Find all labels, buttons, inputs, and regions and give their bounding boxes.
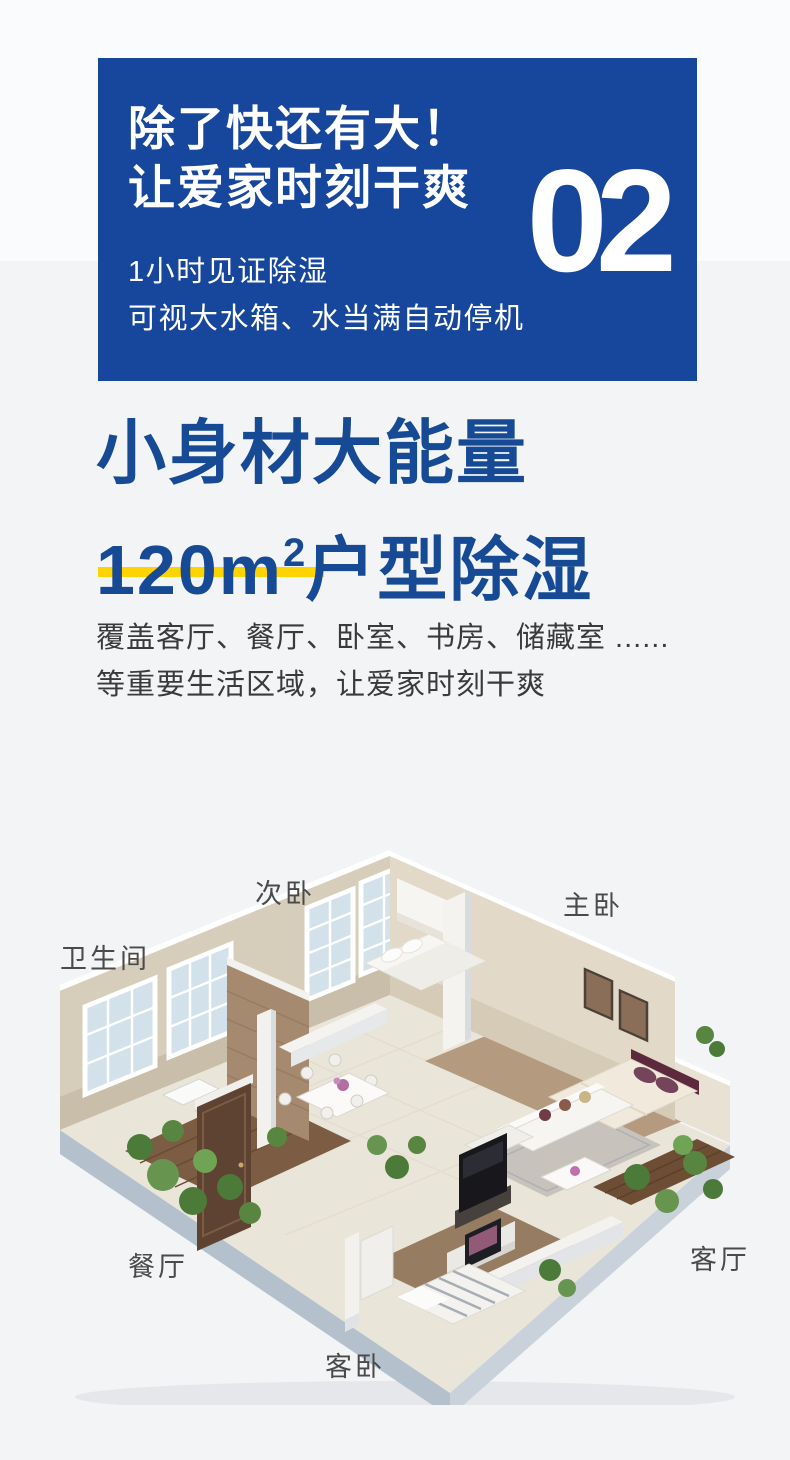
description-line1: 覆盖客厅、餐厅、卧室、书房、储藏室 ...... bbox=[96, 622, 669, 654]
floor-plan: 次卧 主卧 卫生间 餐厅 客厅 客卧 bbox=[45, 845, 745, 1405]
hero-title-line2: 让爱家时刻干爽 bbox=[128, 158, 471, 217]
room-label-bathroom: 卫生间 bbox=[60, 946, 150, 973]
description-line2: 等重要生活区域，让爱家时刻干爽 bbox=[96, 669, 546, 701]
promo-page: 除了快还有大！ 让爱家时刻干爽 02 1小时见证除湿 可视大水箱、水当满自动停机… bbox=[0, 0, 790, 1460]
hero-title-line1: 除了快还有大！ bbox=[128, 99, 471, 158]
headline-line1: 小身材大能量 bbox=[96, 403, 593, 503]
room-label-guest-bedroom: 客卧 bbox=[325, 1354, 385, 1381]
section-number: 02 bbox=[527, 148, 677, 294]
hero-subtitle: 1小时见证除湿 可视大水箱、水当满自动停机 bbox=[128, 249, 525, 343]
hero-subtitle-line1: 1小时见证除湿 bbox=[128, 249, 525, 296]
square-meter-sup: 2 bbox=[283, 531, 305, 575]
main-headline: 小身材大能量 120m2户型除湿 bbox=[96, 403, 593, 620]
hero-banner: 除了快还有大！ 让爱家时刻干爽 02 1小时见证除湿 可视大水箱、水当满自动停机 bbox=[98, 58, 697, 381]
floor-plan-illustration bbox=[45, 845, 745, 1405]
room-label-master-bedroom: 主卧 bbox=[563, 893, 623, 920]
room-label-secondary-bedroom: 次卧 bbox=[255, 881, 315, 908]
description-paragraph: 覆盖客厅、餐厅、卧室、书房、储藏室 ...... 等重要生活区域，让爱家时刻干爽 bbox=[96, 615, 669, 709]
headline-line2: 120m2户型除湿 bbox=[96, 503, 593, 620]
room-label-living-room: 客厅 bbox=[690, 1247, 750, 1274]
room-label-dining-room: 餐厅 bbox=[128, 1254, 188, 1281]
hero-subtitle-line2: 可视大水箱、水当满自动停机 bbox=[128, 296, 525, 343]
hero-title: 除了快还有大！ 让爱家时刻干爽 bbox=[128, 99, 471, 217]
